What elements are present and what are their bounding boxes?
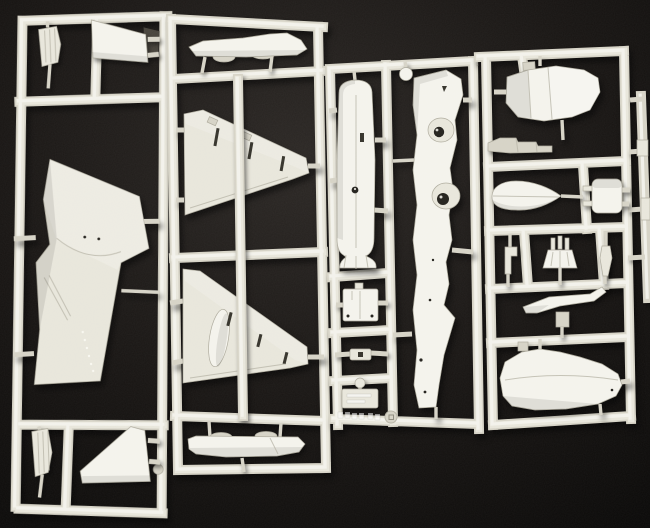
photo-canvas xyxy=(0,0,650,528)
sprue-photo xyxy=(0,0,650,528)
film-grain-overlay xyxy=(0,0,650,528)
